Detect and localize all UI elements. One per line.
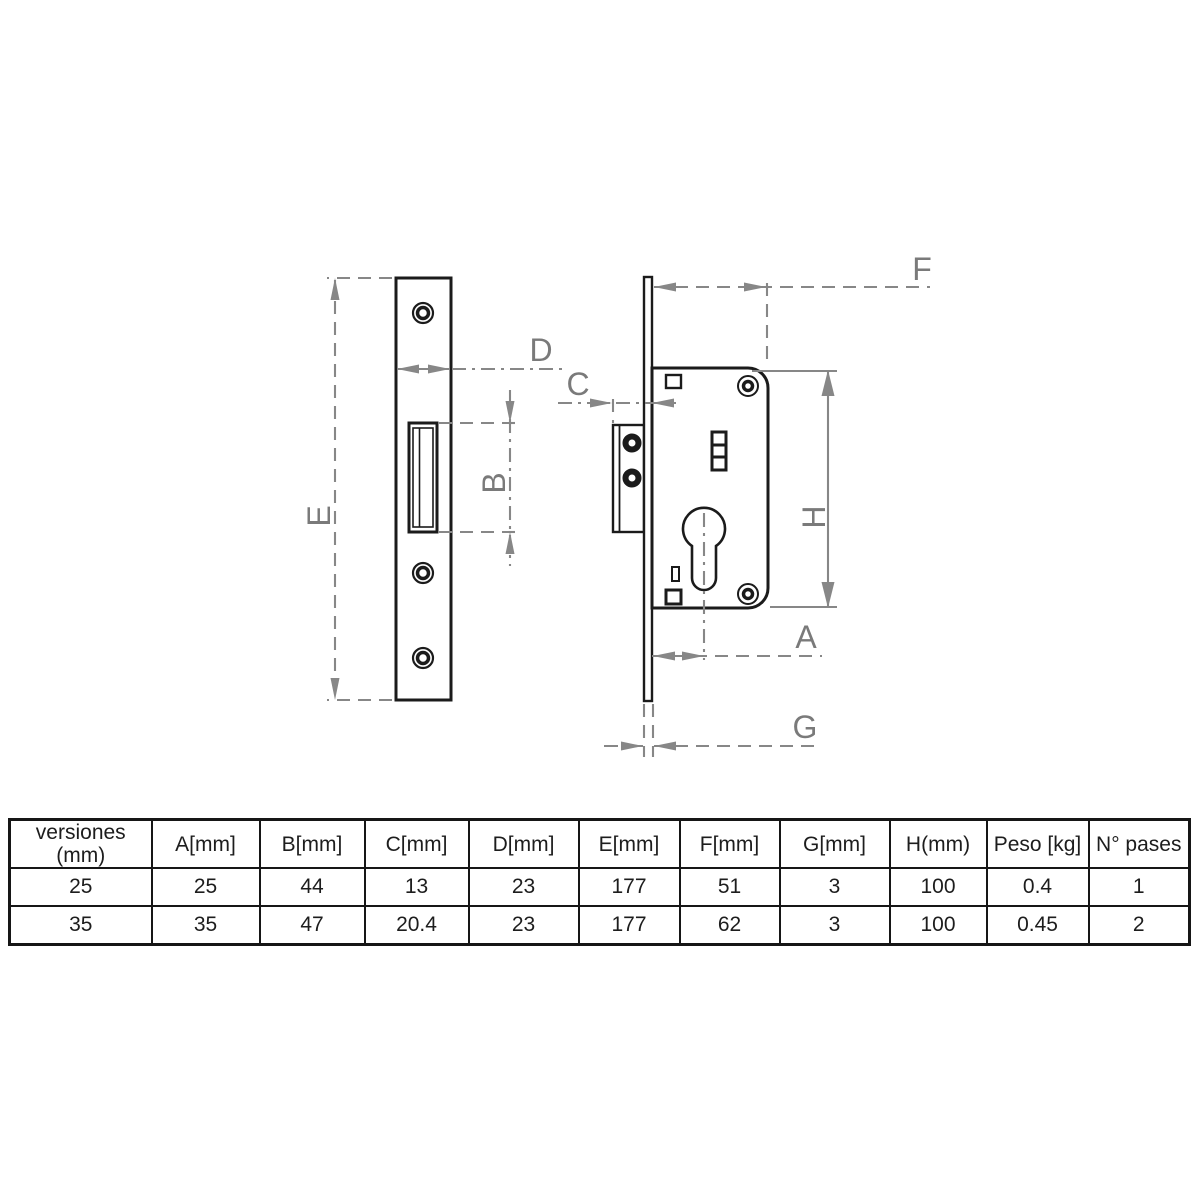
case-screw-top: [738, 376, 758, 396]
case-screw-bottom: [738, 584, 758, 604]
technical-drawing: E D B C: [0, 0, 1200, 800]
cell: 0.4: [987, 868, 1089, 906]
cell: 51: [680, 868, 780, 906]
cell: 62: [680, 906, 780, 945]
cell: 100: [890, 868, 987, 906]
col-header-e: E[mm]: [579, 820, 680, 869]
cell: 44: [260, 868, 365, 906]
col-header-f: F[mm]: [680, 820, 780, 869]
cell: 1: [1089, 868, 1190, 906]
case-square-top: [666, 375, 681, 388]
col-header-versiones: versiones(mm): [10, 820, 152, 869]
dim-label-E: E: [301, 505, 337, 526]
dim-label-H: H: [796, 505, 832, 528]
dim-label-F: F: [912, 251, 932, 287]
col-header-peso: Peso [kg]: [987, 820, 1089, 869]
dim-label-B: B: [476, 472, 512, 493]
dim-label-G: G: [793, 709, 818, 745]
col-header-c: C[mm]: [365, 820, 469, 869]
col-header-d: D[mm]: [469, 820, 579, 869]
dim-label-D: D: [529, 332, 552, 368]
dimension-A: A: [652, 619, 822, 661]
case-slot-small: [672, 567, 679, 581]
strike-box-hole-bottom: [626, 472, 639, 485]
cell: 3: [780, 906, 890, 945]
cell: 100: [890, 906, 987, 945]
dimension-G: G: [604, 704, 820, 757]
strike-plate-hole-middle: [413, 563, 433, 583]
strike-plate-view: [396, 278, 451, 700]
strike-box-hole-top: [626, 437, 639, 450]
latch-rack: [712, 432, 726, 470]
table-row-version-35: 35 35 47 20.4 23 177 62 3 100 0.45 2: [10, 906, 1190, 945]
cell: 23: [469, 868, 579, 906]
cell: 35: [10, 906, 152, 945]
cell: 25: [10, 868, 152, 906]
col-header-b: B[mm]: [260, 820, 365, 869]
col-header-g: G[mm]: [780, 820, 890, 869]
table-row-version-25: 25 25 44 13 23 177 51 3 100 0.4 1: [10, 868, 1190, 906]
strike-plate-hole-bottom: [413, 648, 433, 668]
dimension-F: F: [654, 251, 932, 366]
case-square-bottom: [666, 590, 681, 604]
dimension-E: E: [301, 278, 392, 700]
dim-label-C: C: [566, 366, 589, 402]
strike-box: [613, 425, 644, 532]
dim-label-A: A: [795, 619, 817, 655]
cell: 13: [365, 868, 469, 906]
cell: 3: [780, 868, 890, 906]
cell: 35: [152, 906, 260, 945]
spec-table: versiones(mm) A[mm] B[mm] C[mm] D[mm] E[…: [8, 818, 1191, 946]
cell: 25: [152, 868, 260, 906]
strike-plate-slot: [409, 423, 437, 532]
table-header-row: versiones(mm) A[mm] B[mm] C[mm] D[mm] E[…: [10, 820, 1190, 869]
cell: 20.4: [365, 906, 469, 945]
col-header-h: H(mm): [890, 820, 987, 869]
cell: 177: [579, 906, 680, 945]
lock-body-view: [613, 277, 768, 701]
cell: 2: [1089, 906, 1190, 945]
cell: 0.45: [987, 906, 1089, 945]
col-header-versiones-line2: (mm): [56, 844, 105, 867]
col-header-a: A[mm]: [152, 820, 260, 869]
col-header-versiones-line1: versiones: [36, 821, 126, 844]
cell: 23: [469, 906, 579, 945]
cell: 47: [260, 906, 365, 945]
lock-technical-drawing-page: E D B C: [0, 0, 1200, 1200]
col-header-pases: N° pases: [1089, 820, 1190, 869]
strike-plate-hole-top: [413, 303, 433, 323]
cell: 177: [579, 868, 680, 906]
